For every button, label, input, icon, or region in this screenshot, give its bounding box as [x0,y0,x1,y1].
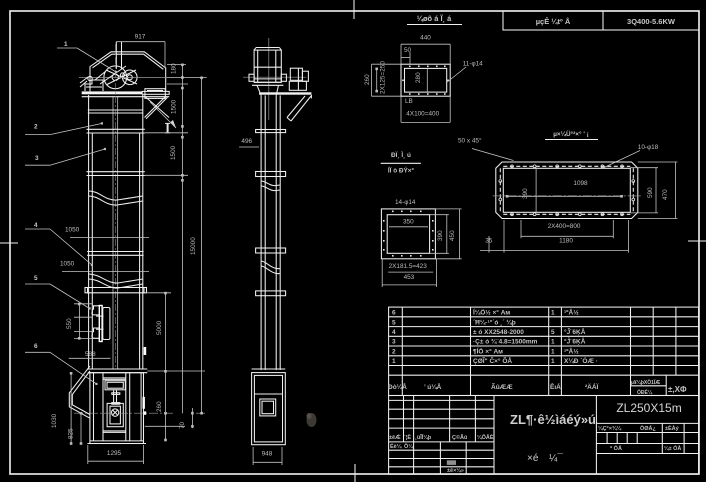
svg-text:1050: 1050 [65,227,80,234]
svg-text:2X125=250: 2X125=250 [380,61,387,94]
svg-text:±,XΦ: ±,XΦ [668,385,687,394]
svg-text:1: 1 [551,349,555,356]
svg-text:470: 470 [662,189,669,200]
svg-text:1180: 1180 [559,237,573,244]
svg-text:1098: 1098 [573,180,588,187]
svg-text:°Ĵ¨6ĶÅ: °Ĵ¨6ĶÅ [564,337,586,346]
svg-text:ÍÏ ò ÐÝ×°: ÍÏ ò ÐÝ×° [388,166,415,175]
svg-text:2X400=800: 2X400=800 [548,223,581,230]
svg-text:1: 1 [392,358,396,365]
svg-text:14-φ14: 14-φ14 [395,199,416,206]
svg-text:50 x 45°: 50 x 45° [458,136,482,144]
svg-text:´¦Ê: ´¦Ê [404,433,411,441]
svg-text:2: 2 [34,124,38,131]
svg-text:Éè¼: Éè¼ [390,442,402,450]
svg-text:ÖØÁ¿: ÖØÁ¿ [640,425,657,432]
svg-text:µ¥¼þXÖ1ÏÆ: µ¥¼þXÖ1ÏÆ [631,379,660,386]
svg-text:1: 1 [64,41,68,48]
svg-text:15000: 15000 [190,237,197,255]
svg-text:¼± ÓÅ: ¼± ÓÅ [664,444,681,452]
svg-text:°Ĵ¨6ĶÅ: °Ĵ¨6ĶÅ [564,327,586,336]
svg-text:260: 260 [364,74,371,85]
svg-text:4: 4 [34,222,38,229]
svg-text:ÃûÆÆ: ÃûÆÆ [491,382,513,391]
svg-text:390: 390 [437,230,444,241]
svg-text:LB: LB [405,98,413,105]
svg-text:ZL250X15m: ZL250X15m [616,401,681,415]
svg-text:1030: 1030 [51,413,58,428]
svg-text:3: 3 [35,155,39,162]
svg-text:5: 5 [392,319,396,326]
svg-text:3: 3 [392,339,396,346]
svg-text:±ê×¼»: ±ê×¼» [447,467,464,474]
svg-text:70: 70 [179,421,186,429]
svg-text:¶ÍÖ ×° Ам: ¶ÍÖ ×° Ам [473,347,503,356]
svg-text:¼øô á Ĩ¸ á: ¼øô á Ĩ¸ á [417,14,452,23]
svg-text:1500: 1500 [170,145,177,160]
svg-text:948: 948 [262,451,273,458]
svg-text:Ö¼: Ö¼ [404,443,413,450]
svg-text:5000: 5000 [156,320,163,335]
svg-text:¼ÔÂÈ: ¼ÔÂÈ [477,433,494,441]
svg-text:6: 6 [34,343,38,350]
svg-text:¼¯: ¼¯ [549,452,563,464]
svg-text:ZL¶·ê½ìáéý»ú: ZL¶·ê½ìáéý»ú [510,412,596,427]
svg-text:3Q400-5.6KW: 3Q400-5.6KW [627,17,676,26]
svg-text:Ðò¼Å: Ðò¼Å [388,382,407,391]
svg-text:496: 496 [241,138,252,145]
svg-text:825: 825 [68,428,75,439]
svg-text:¼Ç°×¾¼: ¼Ç°×¾¼ [598,425,622,432]
svg-text:ÓÐÉ¼: ÓÐÉ¼ [637,388,653,396]
svg-text:¹ºÂ½: ¹ºÂ½ [564,347,579,356]
svg-text:ÇØĨ" Ĉ×° ÕÅ: ÇØĨ" Ĉ×° ÕÅ [473,356,512,365]
svg-text:¹ºÂ½: ¹ºÂ½ [564,308,579,317]
svg-text:280: 280 [415,72,422,83]
svg-text:260: 260 [156,401,163,412]
svg-text:1: 1 [551,358,555,365]
svg-text:µ×¼Ü°²×° ' ¡: µ×¼Ü°²×° ' ¡ [553,129,589,138]
svg-text:2X181.5=423: 2X181.5=423 [389,263,428,270]
svg-text:5: 5 [551,329,555,336]
svg-text:Í¼Ö½ ×° Ам: Í¼Ö½ ×° Ам [473,308,510,317]
svg-text:550: 550 [66,318,73,329]
svg-text:×é: ×é [527,453,539,464]
svg-text:± ó XX2548-2000: ± ó XX2548-2000 [473,329,524,336]
svg-text:11-φ14: 11-φ14 [463,60,483,67]
svg-text:±êǼ: ±êǼ [389,433,401,441]
svg-text:6: 6 [392,310,396,317]
svg-text:180: 180 [171,63,178,74]
svg-text:·Ç± ó ¾¨4.8=1500mm: ·Ç± ó ¾¨4.8=1500mm [473,338,538,346]
svg-text:390: 390 [522,188,529,199]
svg-text:4: 4 [392,329,396,336]
svg-text:ÊıÁ: ÊıÁ [550,382,561,391]
svg-text:2: 2 [392,349,396,356]
svg-text:´Ħ¼·¹°´ó ¸´ ¼þ: ´Ħ¼·¹°´ó ¸´ ¼þ [473,318,516,326]
svg-text:1: 1 [551,310,555,317]
svg-text:50: 50 [404,47,412,54]
svg-text:X¼Ð ´ÓÆ ·: X¼Ð ´ÓÆ · [564,356,598,365]
svg-text:590: 590 [647,187,654,198]
svg-text:4X100=400: 4X100=400 [406,111,439,118]
svg-text:1295: 1295 [107,450,122,457]
svg-text:350: 350 [403,218,414,225]
svg-text:µçÊ ¼tº Å: µçÊ ¼tº Å [536,17,571,26]
svg-text:²ÄÁÏ: ²ÄÁÏ [585,382,599,391]
svg-text:1500: 1500 [171,99,178,114]
svg-text:440: 440 [420,35,431,42]
svg-text:±ÈÀý: ±ÈÀý [665,424,680,432]
svg-text:¸üĬÎ¼þ: ¸üĬÎ¼þ [415,433,432,441]
svg-text:’ ú¼Å: ’ ú¼Å [424,382,442,391]
svg-text:ÐÏ¸ Ì¸ ú: ÐÏ¸ Ì¸ ú [391,150,411,159]
svg-text:10-φ18: 10-φ18 [638,144,659,151]
svg-text:917: 917 [135,34,146,41]
svg-text:Ç©Ãû: Ç©Ãû [452,434,467,441]
svg-text:* ÓÅ: * ÓÅ [610,444,622,452]
svg-text:5: 5 [34,275,38,282]
svg-text:1050: 1050 [60,261,75,268]
svg-text:1: 1 [551,339,555,346]
svg-text:453: 453 [404,274,415,281]
svg-text:450: 450 [449,230,456,241]
svg-text:588: 588 [85,351,96,358]
